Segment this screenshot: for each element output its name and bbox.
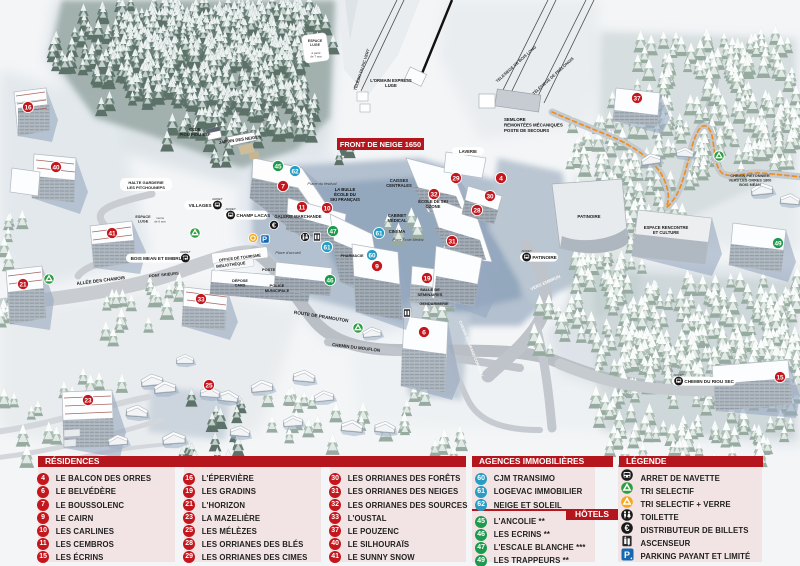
- svg-text:7: 7: [281, 183, 285, 190]
- svg-text:ARRET: ARRET: [212, 197, 223, 201]
- svg-text:SKI FRANÇAIS: SKI FRANÇAIS: [330, 197, 360, 202]
- svg-text:ARRET: ARRET: [180, 250, 191, 254]
- svg-text:25: 25: [205, 382, 213, 389]
- svg-text:60: 60: [368, 252, 376, 259]
- svg-text:MUNICIPALE: MUNICIPALE: [265, 288, 290, 293]
- svg-text:CHAMP LACAS: CHAMP LACAS: [236, 213, 270, 218]
- svg-text:VILLAGES: VILLAGES: [189, 203, 212, 208]
- svg-text:29: 29: [452, 175, 460, 182]
- svg-text:31: 31: [448, 238, 456, 245]
- svg-text:ESPACE: ESPACE: [135, 215, 151, 219]
- svg-text:61: 61: [323, 244, 331, 251]
- svg-text:6: 6: [422, 329, 426, 336]
- svg-text:€: €: [624, 523, 629, 533]
- svg-text:33: 33: [197, 296, 205, 303]
- svg-text:Place d'accueil: Place d'accueil: [275, 251, 300, 255]
- svg-text:P: P: [262, 235, 267, 244]
- svg-text:BOIS MEAN ET EMBRUN: BOIS MEAN ET EMBRUN: [131, 256, 186, 261]
- svg-text:62: 62: [291, 168, 299, 175]
- svg-text:GENDARMERIE: GENDARMERIE: [419, 301, 449, 306]
- svg-text:OZONE: OZONE: [426, 204, 441, 209]
- svg-text:ARRET: ARRET: [673, 373, 684, 377]
- svg-text:LUGE: LUGE: [310, 43, 321, 47]
- svg-text:POSTE DE SECOURS: POSTE DE SECOURS: [504, 128, 549, 133]
- svg-text:de 6 ans: de 6 ans: [154, 220, 166, 224]
- svg-text:PATINOIRE: PATINOIRE: [577, 214, 600, 219]
- svg-text:SÉMINAIRES: SÉMINAIRES: [418, 292, 443, 297]
- svg-text:LUGE: LUGE: [138, 219, 149, 223]
- svg-text:REMONTÉES MÉCANIQUES: REMONTÉES MÉCANIQUES: [504, 122, 563, 127]
- svg-text:ET CULTURE: ET CULTURE: [653, 230, 679, 235]
- svg-text:POSTE: POSTE: [262, 267, 276, 272]
- svg-text:9: 9: [375, 263, 379, 270]
- svg-text:37: 37: [633, 95, 641, 102]
- svg-text:4: 4: [499, 175, 503, 182]
- svg-text:41: 41: [108, 230, 116, 237]
- svg-text:10: 10: [323, 205, 331, 212]
- svg-text:Place du festival: Place du festival: [307, 181, 336, 186]
- svg-text:CINÉMA: CINÉMA: [389, 229, 406, 234]
- svg-text:Place École Medrai: Place École Medrai: [393, 237, 424, 242]
- svg-text:ARRET: ARRET: [225, 207, 236, 211]
- svg-text:40: 40: [52, 164, 60, 171]
- svg-text:61: 61: [375, 230, 383, 237]
- svg-text:SEMLORE: SEMLORE: [504, 117, 526, 122]
- svg-text:de 7 ans: de 7 ans: [310, 55, 322, 59]
- svg-text:PATINOIRE: PATINOIRE: [532, 255, 556, 260]
- svg-text:CHEMIN DU RIOU SEC: CHEMIN DU RIOU SEC: [684, 379, 734, 384]
- svg-text:21: 21: [19, 281, 27, 288]
- svg-text:49: 49: [774, 240, 782, 247]
- svg-text:MÉDICAL: MÉDICAL: [387, 218, 407, 223]
- svg-text:19: 19: [423, 275, 431, 282]
- svg-text:GALERIE MARCHANDE: GALERIE MARCHANDE: [274, 214, 321, 219]
- svg-text:32: 32: [430, 191, 438, 198]
- svg-text:CHEMIN PIÉTONNIER: CHEMIN PIÉTONNIER: [730, 173, 769, 178]
- svg-text:BOIS MÉAN: BOIS MÉAN: [739, 182, 761, 187]
- svg-text:15: 15: [776, 374, 784, 381]
- svg-text:PHARMACIE: PHARMACIE: [341, 254, 364, 258]
- svg-text:DÉPOSE: DÉPOSE: [232, 278, 248, 283]
- svg-text:€: €: [272, 223, 276, 230]
- svg-text:46: 46: [326, 277, 334, 284]
- svg-text:CARS: CARS: [235, 283, 246, 287]
- svg-text:23: 23: [84, 397, 92, 404]
- svg-text:47: 47: [329, 228, 337, 235]
- svg-text:LAVERIE: LAVERIE: [459, 149, 477, 154]
- svg-text:PIOU PIOU ESF: PIOU PIOU ESF: [180, 132, 211, 137]
- svg-text:VERS LES ORRES 1800: VERS LES ORRES 1800: [729, 179, 772, 183]
- svg-text:16: 16: [24, 104, 32, 111]
- svg-text:45: 45: [274, 163, 282, 170]
- svg-text:28: 28: [473, 207, 481, 214]
- svg-text:P: P: [624, 550, 630, 560]
- svg-text:FRONT DE NEIGE 1650: FRONT DE NEIGE 1650: [340, 140, 421, 149]
- svg-text:CENTRALES: CENTRALES: [386, 183, 412, 188]
- svg-text:11: 11: [299, 204, 306, 211]
- svg-text:LUGE: LUGE: [385, 83, 397, 88]
- svg-text:LES PITCHOUNEPS: LES PITCHOUNEPS: [127, 185, 165, 190]
- svg-text:30: 30: [486, 193, 494, 200]
- svg-text:ARRET: ARRET: [521, 249, 532, 253]
